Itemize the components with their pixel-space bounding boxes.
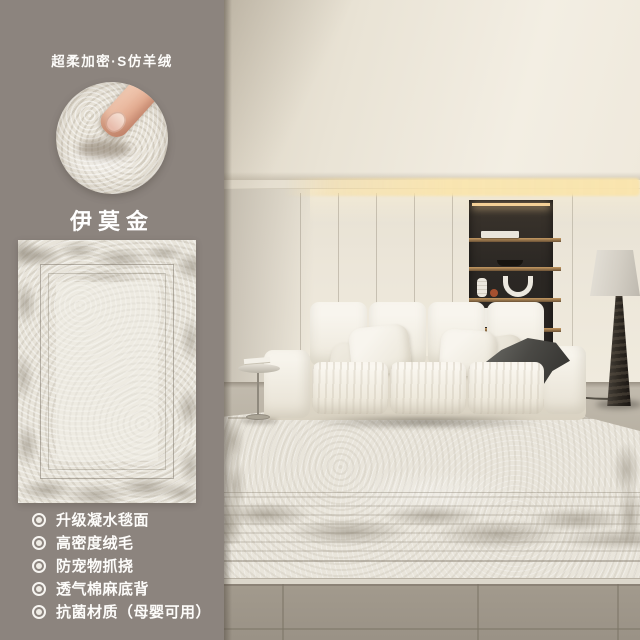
wood-shelf xyxy=(469,238,561,242)
rug-distressed-band-right xyxy=(606,440,640,558)
feature-label: 升级凝水毯面 xyxy=(56,509,149,530)
product-name: 伊莫金 xyxy=(0,204,224,236)
feature-label: 透气棉麻底背 xyxy=(56,578,149,599)
swatch-center-field xyxy=(56,282,158,461)
rug-edge-shadow xyxy=(224,584,640,586)
feature-label: 高密度绒毛 xyxy=(56,532,134,553)
rug-swatch-image xyxy=(18,240,196,503)
feature-item: 透气棉麻底背 xyxy=(32,577,211,600)
table-stem xyxy=(257,370,259,416)
led-cove-light xyxy=(284,178,640,196)
modular-sofa xyxy=(264,300,586,422)
ring-bullet-icon xyxy=(32,536,46,550)
tile-grout-line xyxy=(282,582,284,640)
tile-grout-line xyxy=(477,582,479,640)
decor-sculpture xyxy=(503,276,533,297)
ceiling xyxy=(224,0,640,192)
rug-distressed-band xyxy=(224,496,640,558)
table-top xyxy=(238,364,280,373)
product-info-panel: 超柔加密·S仿羊绒 伊莫金 升级凝水毯面 高密度绒毛 xyxy=(0,0,224,640)
rug-binding-edge xyxy=(224,578,640,584)
ceiling-corner-shadow xyxy=(224,0,424,192)
sofa-shadow xyxy=(268,416,582,428)
ring-bullet-icon xyxy=(32,513,46,527)
rug-border-line xyxy=(224,560,640,562)
feature-item: 抗菌材质（母婴可用） xyxy=(32,600,211,623)
product-promo-image: 超柔加密·S仿羊绒 伊莫金 升级凝水毯面 高密度绒毛 xyxy=(0,0,640,640)
sofa-seat-cushion xyxy=(468,362,544,414)
rug-border-line xyxy=(224,492,640,493)
fabric-closeup-image xyxy=(56,82,168,194)
ring-bullet-icon xyxy=(32,582,46,596)
feature-label: 抗菌材质（母婴可用） xyxy=(56,601,211,622)
feature-list: 升级凝水毯面 高密度绒毛 防宠物抓挠 透气棉麻底背 抗菌材质（母婴可用） xyxy=(32,508,211,623)
photo-edge-shadow xyxy=(224,0,232,640)
living-room-photo xyxy=(224,0,640,640)
tile-grout-line xyxy=(617,582,619,640)
feature-label: 防宠物抓挠 xyxy=(56,555,134,576)
ring-bullet-icon xyxy=(32,559,46,573)
fingernail xyxy=(102,108,130,136)
table-base xyxy=(246,414,270,420)
wood-shelf xyxy=(469,267,561,271)
sofa-seat-cushion xyxy=(390,362,466,414)
finger-press-icon xyxy=(95,82,168,142)
floor-lamp-shade xyxy=(590,250,640,296)
decor-stacked-books xyxy=(481,231,519,238)
side-table xyxy=(236,356,282,422)
fingertip-press-shadow xyxy=(78,140,130,158)
ring-bullet-icon xyxy=(32,605,46,619)
decor-ornament xyxy=(490,289,498,297)
decor-vase xyxy=(477,278,487,297)
sofa-seat-cushion xyxy=(312,362,388,414)
product-tagline: 超柔加密·S仿羊绒 xyxy=(0,50,224,70)
decor-bowl xyxy=(497,260,523,266)
feature-item: 防宠物抓挠 xyxy=(32,554,211,577)
feature-item: 升级凝水毯面 xyxy=(32,508,211,531)
feature-item: 高密度绒毛 xyxy=(32,531,211,554)
tile-grout-line xyxy=(224,628,640,630)
area-rug xyxy=(224,404,640,584)
shelf-led-strip xyxy=(472,203,550,206)
